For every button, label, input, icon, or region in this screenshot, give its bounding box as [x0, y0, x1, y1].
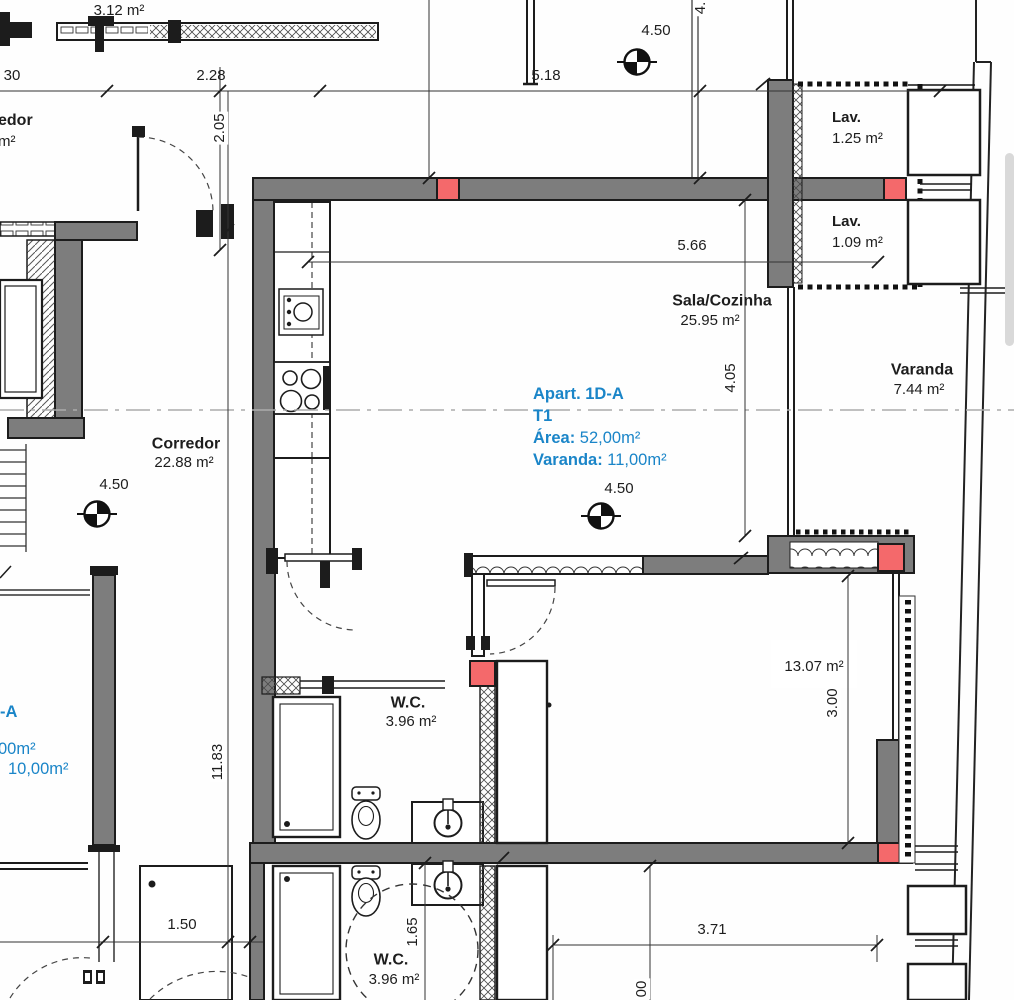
room-area-varanda: 7.44 m²	[894, 382, 945, 398]
dim-1-50: 1.50	[167, 917, 196, 933]
level-value-top: 4.50	[641, 23, 670, 39]
room-label-wc-upper: W.C.	[391, 696, 426, 713]
room-label-lav-upper: Lav.	[832, 110, 861, 126]
info-cut-area: 00m²	[0, 741, 36, 758]
dim-11-83: 11.83	[210, 742, 226, 782]
room-area-lav-lower: 1.09 m²	[832, 235, 883, 251]
room-area-quarto: 13.07 m²	[784, 659, 843, 675]
floor-plan-drawing	[0, 0, 1014, 1000]
lower-apartment-left	[0, 566, 249, 1000]
dim-fragment-top-right: 4.	[693, 0, 709, 16]
floor-plan-page: 3.12 m² 30 2.28 5.18 4. 4.50 edor m² 2.0…	[0, 0, 1014, 1000]
room-label-lav-lower: Lav.	[832, 214, 861, 230]
level-marker-symbol-top	[617, 50, 657, 75]
wardrobe-lower	[497, 866, 547, 1000]
scrollbar-thumb[interactable]	[1005, 153, 1014, 346]
varanda-value: 11,00m²	[607, 451, 666, 469]
corridor-cut-label: edor	[0, 113, 33, 130]
info-cut-title: -A	[0, 704, 17, 721]
dim-3-71: 3.71	[697, 922, 726, 938]
neighbor-area-label: 3.12 m²	[94, 3, 145, 19]
apartment-title: Apart. 1D-A	[533, 386, 624, 403]
dim-1-65: 1.65	[405, 915, 421, 948]
toilet-upper	[352, 787, 380, 800]
room-area-wc-upper: 3.96 m²	[386, 714, 437, 730]
corridor-cut-area: m²	[0, 134, 16, 150]
equipment-units	[908, 90, 1014, 1000]
level-value-left: 4.50	[99, 477, 128, 493]
dim-2-28: 2.28	[196, 68, 225, 84]
room-label-wc-lower: W.C.	[374, 953, 409, 970]
dim-fragment-bottom: 00	[634, 979, 650, 1000]
varanda-label: Varanda:	[533, 451, 603, 469]
room-area-sala: 25.95 m²	[680, 313, 739, 329]
neighbor-apartment-top-wall	[0, 0, 698, 178]
dim-2-05: 2.05	[212, 111, 228, 144]
room-area-lav-upper: 1.25 m²	[832, 131, 883, 147]
level-marker-symbol-left	[77, 502, 117, 527]
level-value-center: 4.50	[604, 481, 633, 497]
apartment-varanda-line: Varanda: 11,00m²	[533, 452, 667, 469]
apartment-area-line: Área: 52,00m²	[533, 430, 640, 447]
room-area-corredor: 22.88 m²	[154, 455, 213, 471]
dim-5-66: 5.66	[677, 238, 706, 254]
room-area-wc-lower: 3.96 m²	[369, 972, 420, 988]
area-label: Área:	[533, 429, 575, 447]
apartment-typology: T1	[533, 408, 552, 425]
info-cut-varanda: 10,00m²	[8, 761, 69, 778]
room-label-sala: Sala/Cozinha	[672, 294, 772, 311]
building-core	[0, 222, 137, 578]
room-label-corredor: Corredor	[152, 437, 220, 454]
dim-fragment-left: 30	[4, 68, 21, 84]
wc-upper-fixtures	[262, 661, 552, 843]
dim-3-00: 3.00	[825, 686, 841, 719]
hall-door	[266, 548, 362, 630]
dim-5-18: 5.18	[531, 68, 560, 84]
dim-4-05: 4.05	[723, 361, 739, 394]
kitchen	[274, 202, 330, 588]
balcony-rail	[899, 596, 915, 863]
area-value: 52,00m²	[580, 429, 641, 447]
bedroom-door	[487, 580, 555, 654]
apartment-walls	[250, 80, 914, 1000]
level-marker-symbol-center	[581, 504, 621, 529]
wardrobe-upper	[497, 661, 547, 843]
toilet-lower	[352, 866, 380, 879]
room-label-varanda: Varanda	[891, 363, 953, 380]
